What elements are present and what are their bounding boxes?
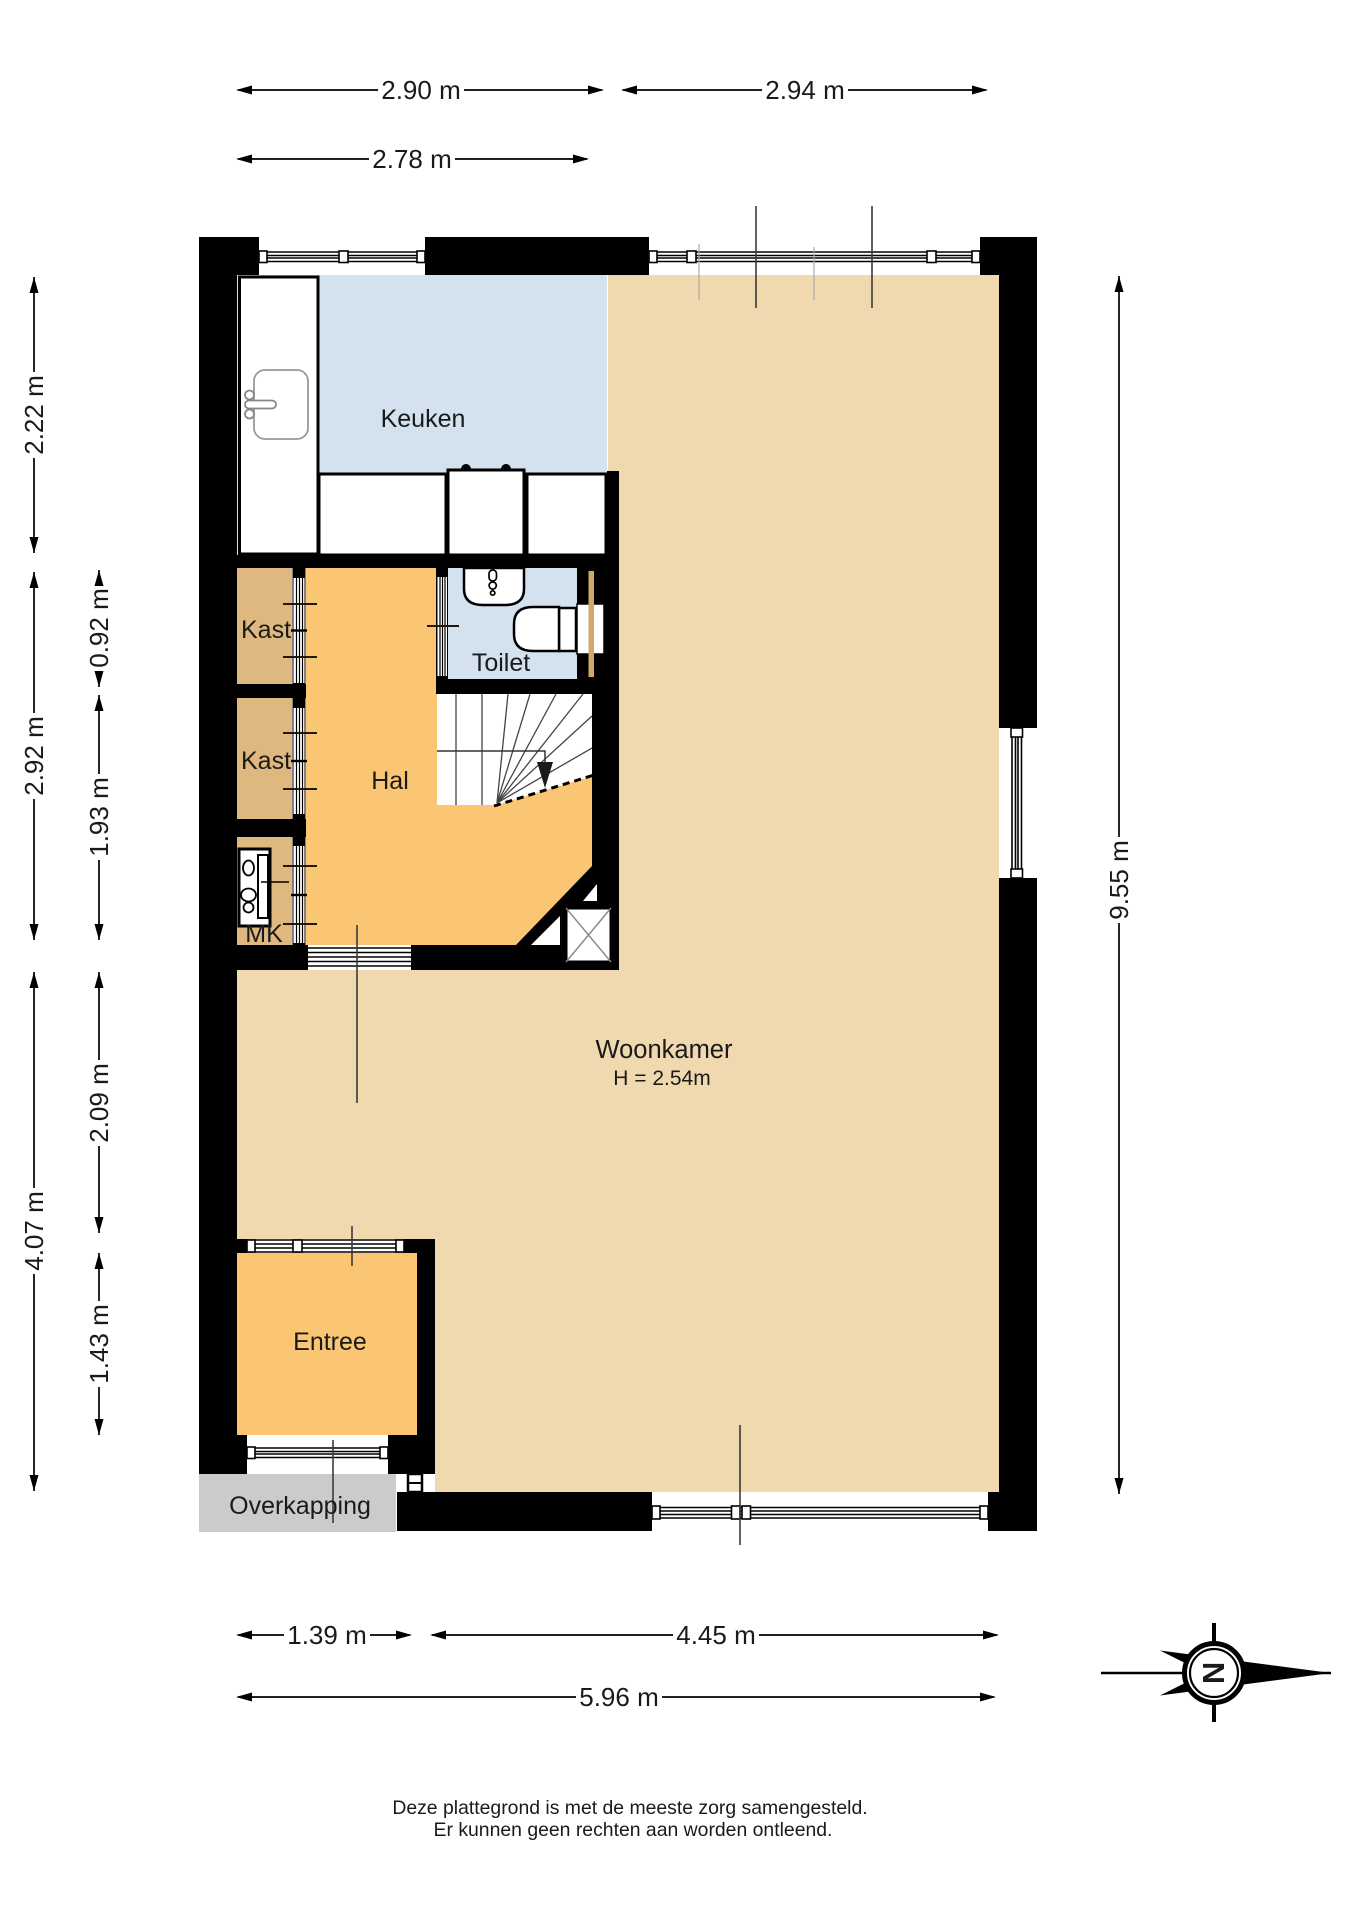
svg-text:Overkapping: Overkapping — [229, 1492, 371, 1520]
svg-text:0.92 m: 0.92 m — [84, 588, 114, 668]
svg-text:2.78 m: 2.78 m — [372, 144, 452, 174]
svg-text:2.92 m: 2.92 m — [19, 716, 49, 796]
svg-text:1.43 m: 1.43 m — [84, 1304, 114, 1384]
svg-text:Toilet: Toilet — [472, 649, 530, 677]
svg-text:4.07 m: 4.07 m — [19, 1191, 49, 1271]
svg-text:H = 2.54m: H = 2.54m — [613, 1067, 710, 1090]
svg-text:5.96 m: 5.96 m — [579, 1682, 659, 1712]
svg-text:Kast: Kast — [241, 747, 291, 775]
svg-text:Keuken: Keuken — [381, 405, 466, 433]
svg-text:1.93 m: 1.93 m — [84, 777, 114, 857]
svg-text:Kast: Kast — [241, 616, 291, 644]
svg-text:Er kunnen geen rechten aan wor: Er kunnen geen rechten aan worden ontlee… — [434, 1819, 833, 1841]
svg-text:MK: MK — [245, 920, 283, 948]
svg-text:2.90 m: 2.90 m — [381, 75, 461, 105]
svg-text:1.39 m: 1.39 m — [287, 1620, 367, 1650]
svg-text:2.22 m: 2.22 m — [19, 375, 49, 455]
svg-text:Entree: Entree — [293, 1328, 367, 1356]
svg-text:2.94 m: 2.94 m — [765, 75, 845, 105]
svg-text:Deze plattegrond is met de mee: Deze plattegrond is met de meeste zorg s… — [392, 1797, 867, 1819]
svg-text:4.45 m: 4.45 m — [676, 1620, 756, 1650]
svg-text:N: N — [1196, 1662, 1231, 1684]
svg-text:2.09 m: 2.09 m — [84, 1063, 114, 1143]
svg-text:Woonkamer: Woonkamer — [595, 1036, 733, 1064]
svg-text:9.55 m: 9.55 m — [1104, 840, 1134, 920]
svg-text:Hal: Hal — [371, 767, 409, 795]
